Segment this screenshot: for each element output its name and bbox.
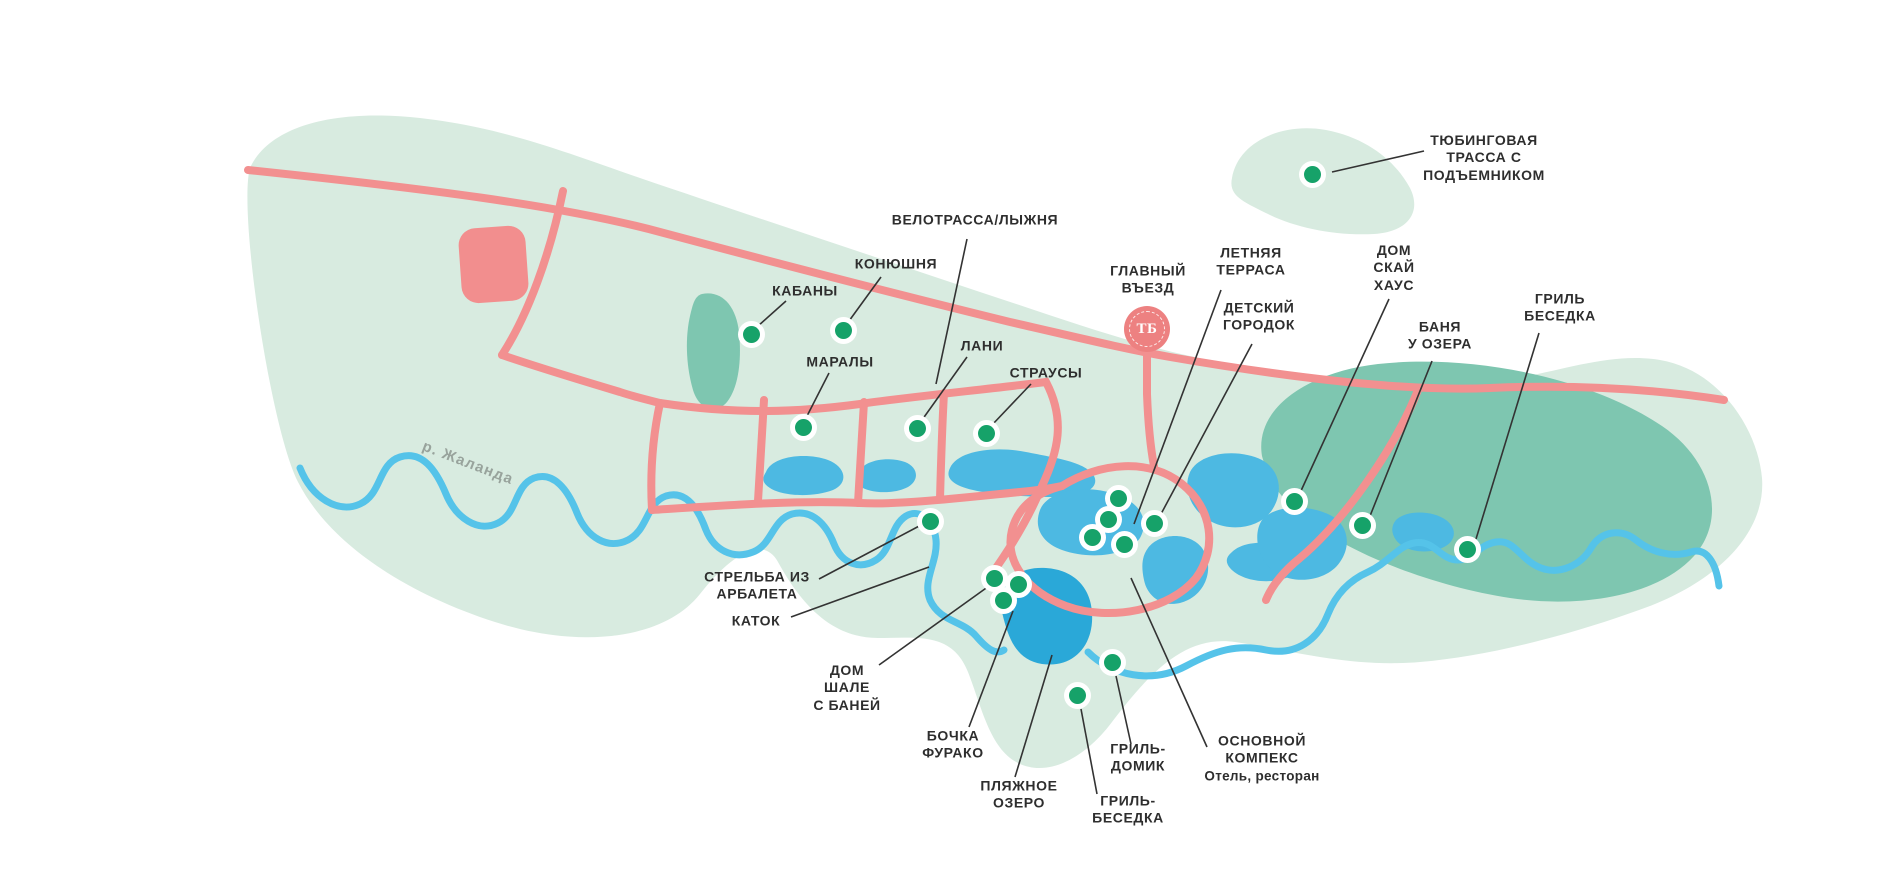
label-bike-ski: ВЕЛОТРАССА/ЛЫЖНЯ — [892, 211, 1058, 228]
label-main-complex-subtitle: Отель, ресторан — [1204, 769, 1319, 786]
poi-marker-crossbow — [917, 508, 944, 535]
label-summer-terrace: ЛЕТНЯЯ ТЕРРАСА — [1216, 245, 1285, 280]
label-ice-rink: КАТОК — [732, 612, 781, 629]
poi-marker-tubing — [1299, 161, 1326, 188]
label-furaco: БОЧКА ФУРАКО — [922, 728, 983, 763]
label-ostriches: СТРАУСЫ — [1010, 364, 1083, 381]
poi-marker-complex-3 — [1079, 524, 1106, 551]
label-grill-gazebo-east: ГРИЛЬ БЕСЕДКА — [1524, 291, 1596, 326]
entrance-badge: ТБ — [1124, 306, 1170, 352]
poi-marker-complex-4 — [1111, 531, 1138, 558]
label-lake-banya: БАНЯ У ОЗЕРА — [1408, 319, 1472, 354]
poi-marker-sky-house — [1281, 488, 1308, 515]
label-kids-playground: ДЕТСКИЙ ГОРОДОК — [1223, 300, 1295, 335]
label-boars: КАБАНЫ — [772, 282, 838, 299]
label-deer: МАРАЛЫ — [806, 353, 873, 370]
label-sky-house: ДОМ СКАЙ ХАУС — [1373, 242, 1414, 294]
resort-map: ТБ ТЮБИНГОВАЯ ТРАССА С ПОДЪЕМНИКОМ ВЕЛОТ… — [0, 0, 1900, 888]
poi-marker-grill-house — [1099, 649, 1126, 676]
label-chalet: ДОМ ШАЛЕ С БАНЕЙ — [813, 662, 880, 714]
label-tubing: ТЮБИНГОВАЯ ТРАССА С ПОДЪЕМНИКОМ — [1423, 132, 1545, 184]
poi-marker-stables — [830, 317, 857, 344]
label-crossbow: СТРЕЛЬБА ИЗ АРБАЛЕТА — [704, 569, 810, 604]
poi-marker-ostriches — [973, 420, 1000, 447]
poi-marker-furaco-2 — [990, 587, 1017, 614]
poi-marker-lake-banya — [1349, 512, 1376, 539]
poi-marker-fallow-deer — [904, 415, 931, 442]
pink-building-shape — [457, 225, 529, 304]
poi-marker-grill-gazebo-east — [1454, 536, 1481, 563]
label-grill-house: ГРИЛЬ- ДОМИК — [1110, 741, 1166, 776]
label-fallow-deer: ЛАНИ — [961, 337, 1004, 354]
label-grill-gazebo-south: ГРИЛЬ- БЕСЕДКА — [1092, 793, 1164, 828]
poi-marker-boars — [738, 321, 765, 348]
grove-shape — [687, 293, 740, 409]
poi-marker-complex-5 — [1141, 510, 1168, 537]
label-main-complex: ОСНОВНОЙ КОМПЕКС — [1218, 733, 1306, 768]
label-stables: КОНЮШНЯ — [855, 255, 937, 272]
poi-marker-grill-gazebo-south — [1064, 682, 1091, 709]
label-main-entrance: ГЛАВНЫЙ ВЪЕЗД — [1110, 263, 1186, 298]
label-beach-lake: ПЛЯЖНОЕ ОЗЕРО — [980, 778, 1057, 813]
road-pen-divider — [940, 393, 944, 499]
entrance-ornament-ring — [1129, 311, 1165, 347]
poi-marker-deer — [790, 414, 817, 441]
